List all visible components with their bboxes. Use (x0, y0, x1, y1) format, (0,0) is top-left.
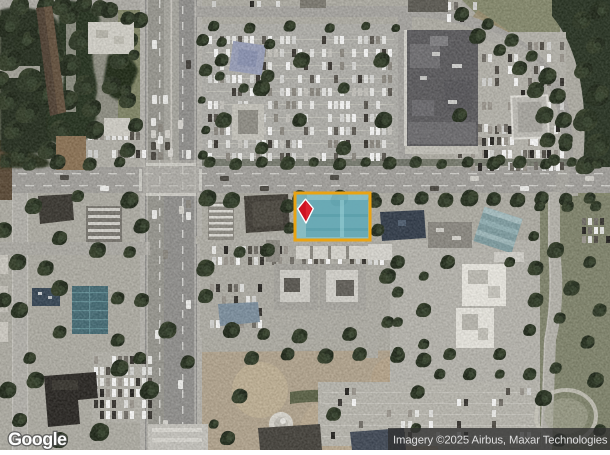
svg-text:Google: Google (8, 429, 67, 449)
svg-text:Imagery ©2025 Airbus, Maxar Te: Imagery ©2025 Airbus, Maxar Technologies (393, 435, 608, 447)
